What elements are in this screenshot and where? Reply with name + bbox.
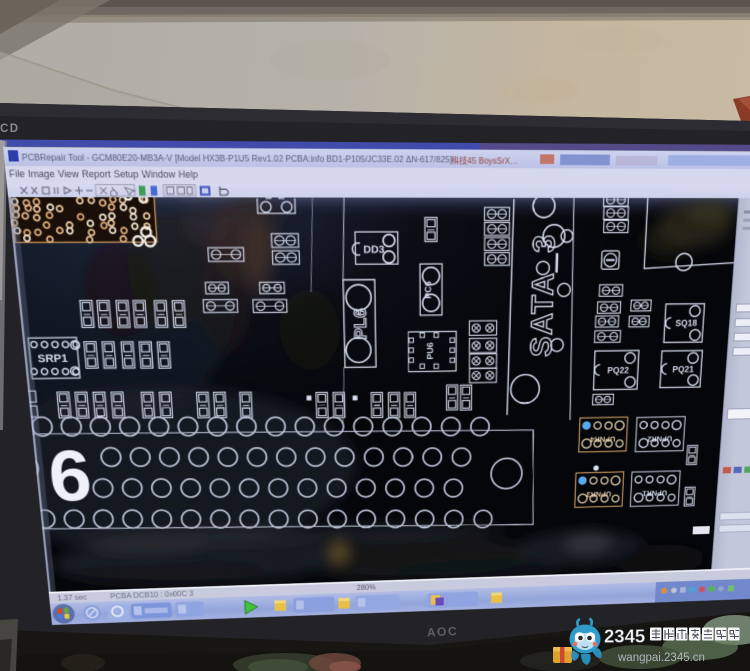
svg-text:CD: CD xyxy=(0,123,20,135)
svg-text:UPNR4: UPNR4 xyxy=(589,435,615,444)
svg-text:PL6: PL6 xyxy=(351,308,371,340)
svg-text:6: 6 xyxy=(45,436,95,517)
svg-text:2345: 2345 xyxy=(604,626,645,647)
svg-text:DD3: DD3 xyxy=(363,243,385,256)
svg-text:SQ18: SQ18 xyxy=(675,319,697,329)
svg-text:UPNR3: UPNR3 xyxy=(586,490,611,499)
svg-text:PC6: PC6 xyxy=(424,281,434,299)
svg-text:wangpai.2345.cn: wangpai.2345.cn xyxy=(617,652,705,664)
svg-text:UPNR2: UPNR2 xyxy=(647,434,672,443)
svg-text:PU6: PU6 xyxy=(426,342,435,360)
svg-text:UPNR1: UPNR1 xyxy=(642,489,667,497)
svg-text:PQ22: PQ22 xyxy=(607,366,629,376)
svg-text:PQ21: PQ21 xyxy=(672,365,694,374)
svg-text:SRP1: SRP1 xyxy=(37,352,68,365)
